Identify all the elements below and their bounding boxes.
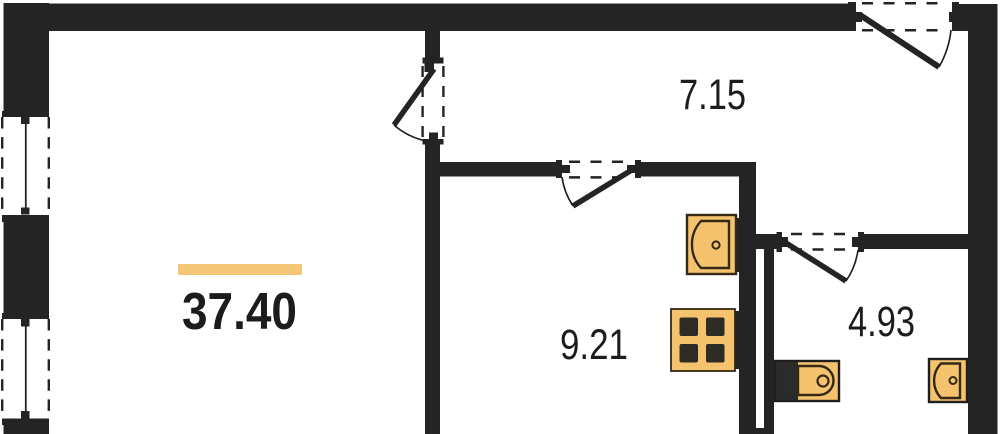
svg-text:9.21: 9.21: [560, 321, 628, 369]
svg-text:7.15: 7.15: [679, 71, 746, 119]
svg-text:4.93: 4.93: [848, 298, 915, 346]
svg-text:37.40: 37.40: [182, 283, 297, 341]
